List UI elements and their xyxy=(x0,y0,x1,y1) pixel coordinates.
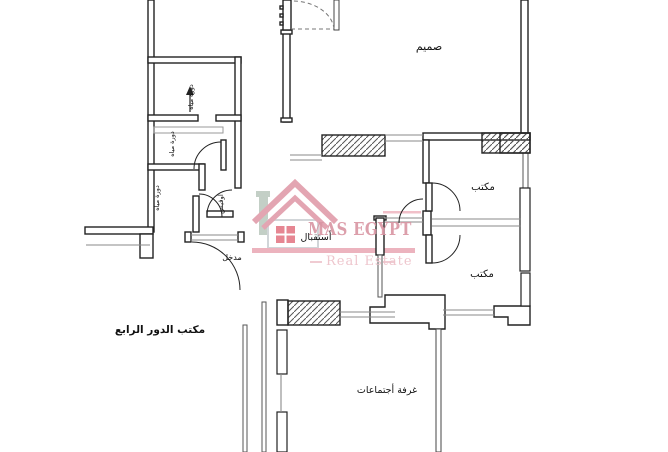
room-label-bathroom-low: دورة مياه xyxy=(151,178,163,218)
room-label-entrance: مدخل xyxy=(212,252,252,264)
room-label-reception: أستقبال xyxy=(291,232,341,244)
watermark-band xyxy=(252,248,415,253)
room-label-bathroom-mid: دورة مياه xyxy=(166,124,178,164)
floor-plan-canvas: MAS EGYPT Real Estate مكتب الدور الرابع … xyxy=(0,0,668,452)
room-label-office-lower: مكتب xyxy=(460,269,504,281)
plan-title-label: مكتب الدور الرابع xyxy=(105,324,215,336)
dashed-door xyxy=(291,1,334,29)
room-label-bathroom-top: دورة مياه xyxy=(185,77,197,117)
room-label-pantry: اوفيس xyxy=(215,184,227,224)
watermark-tagline-text: Real Estate xyxy=(326,254,413,269)
watermark-dash-left xyxy=(310,261,322,263)
room-label-design: صميم xyxy=(407,41,451,53)
room-label-meeting: غرفة أجتماعات xyxy=(342,385,432,397)
room-label-office-upper: مكتب xyxy=(461,182,505,194)
